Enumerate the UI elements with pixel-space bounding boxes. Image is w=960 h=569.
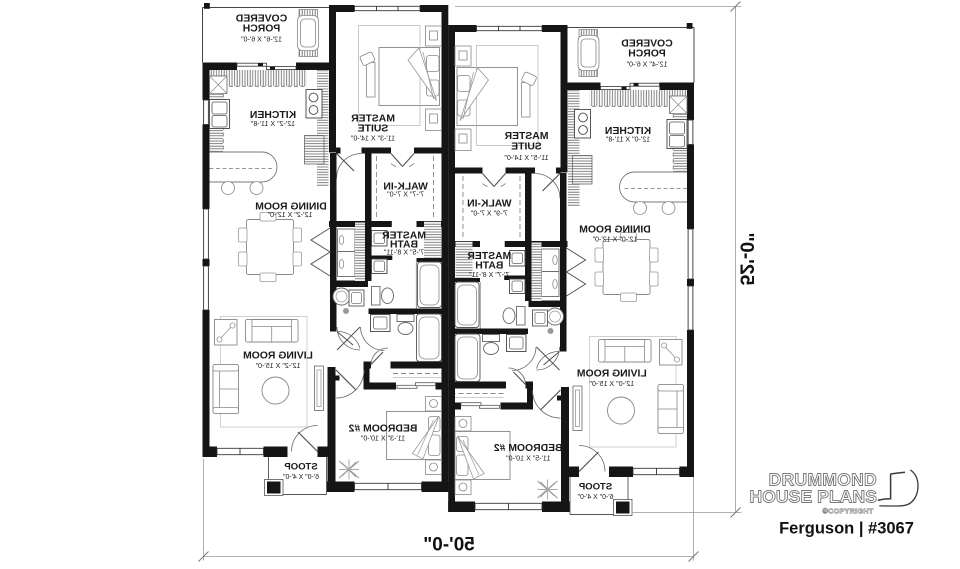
svg-text:11'-5" X 10'-0": 11'-5" X 10'-0" — [506, 455, 551, 463]
svg-text:©COPYRIGHT: ©COPYRIGHT — [822, 507, 873, 516]
svg-text:11'-3" X 14'-0": 11'-3" X 14'-0" — [350, 135, 395, 143]
svg-text:BEDROOM #2: BEDROOM #2 — [348, 424, 417, 435]
svg-text:12'-0" X 11'-8": 12'-0" X 11'-8" — [605, 136, 650, 144]
svg-text:Ferguson | #3067: Ferguson | #3067 — [779, 520, 914, 538]
svg-text:11'-5" X 14'-0": 11'-5" X 14'-0" — [504, 154, 549, 162]
svg-text:PORCH: PORCH — [628, 49, 666, 60]
svg-text:LIVING ROOM: LIVING ROOM — [243, 351, 313, 362]
svg-text:11'-3" X 10'-0": 11'-3" X 10'-0" — [360, 435, 405, 443]
svg-text:52'-0": 52'-0" — [736, 233, 758, 286]
svg-text:7'-7" X 7'-0": 7'-7" X 7'-0" — [387, 191, 424, 199]
svg-text:12'-2" X 11'-8": 12'-2" X 11'-8" — [250, 120, 295, 128]
svg-text:SUITE: SUITE — [511, 142, 542, 153]
svg-text:DINING ROOM: DINING ROOM — [579, 225, 651, 236]
svg-text:HOUSE PLANS: HOUSE PLANS — [749, 487, 877, 507]
svg-text:7'-7" X 8'-11": 7'-7" X 8'-11" — [469, 271, 510, 279]
svg-text:LIVING ROOM: LIVING ROOM — [577, 369, 647, 380]
svg-text:12'-4" X 6'-0": 12'-4" X 6'-0" — [626, 61, 667, 69]
svg-text:7'-9" X 7'-0": 7'-9" X 7'-0" — [470, 210, 507, 218]
svg-text:STOOP: STOOP — [578, 482, 612, 493]
svg-text:6'-0" X 4'-0": 6'-0" X 4'-0" — [283, 474, 319, 481]
svg-text:12'-2" X 15'-0": 12'-2" X 15'-0" — [255, 362, 300, 370]
svg-text:BEDROOM #2: BEDROOM #2 — [494, 443, 563, 454]
svg-text:WALK-IN: WALK-IN — [467, 199, 511, 210]
svg-text:6'-0" X 4'-0": 6'-0" X 4'-0" — [577, 494, 613, 501]
svg-text:12'-2" X 12'-0": 12'-2" X 12'-0" — [267, 211, 312, 219]
svg-text:12'-0" X 12'-0": 12'-0" X 12'-0" — [592, 236, 637, 244]
svg-text:7'-5" X 8'-11": 7'-5" X 8'-11" — [383, 249, 424, 257]
svg-text:12'-0" X 15'-0": 12'-0" X 15'-0" — [589, 380, 634, 388]
svg-text:STOOP: STOOP — [284, 462, 318, 473]
svg-text:MASTER: MASTER — [504, 131, 548, 142]
svg-text:SUITE: SUITE — [358, 124, 389, 135]
svg-text:PORCH: PORCH — [243, 24, 281, 35]
svg-text:50'-0": 50'-0" — [423, 535, 475, 556]
svg-text:BATH: BATH — [475, 261, 503, 272]
svg-text:12'-6" X 6'-0": 12'-6" X 6'-0" — [241, 36, 282, 44]
